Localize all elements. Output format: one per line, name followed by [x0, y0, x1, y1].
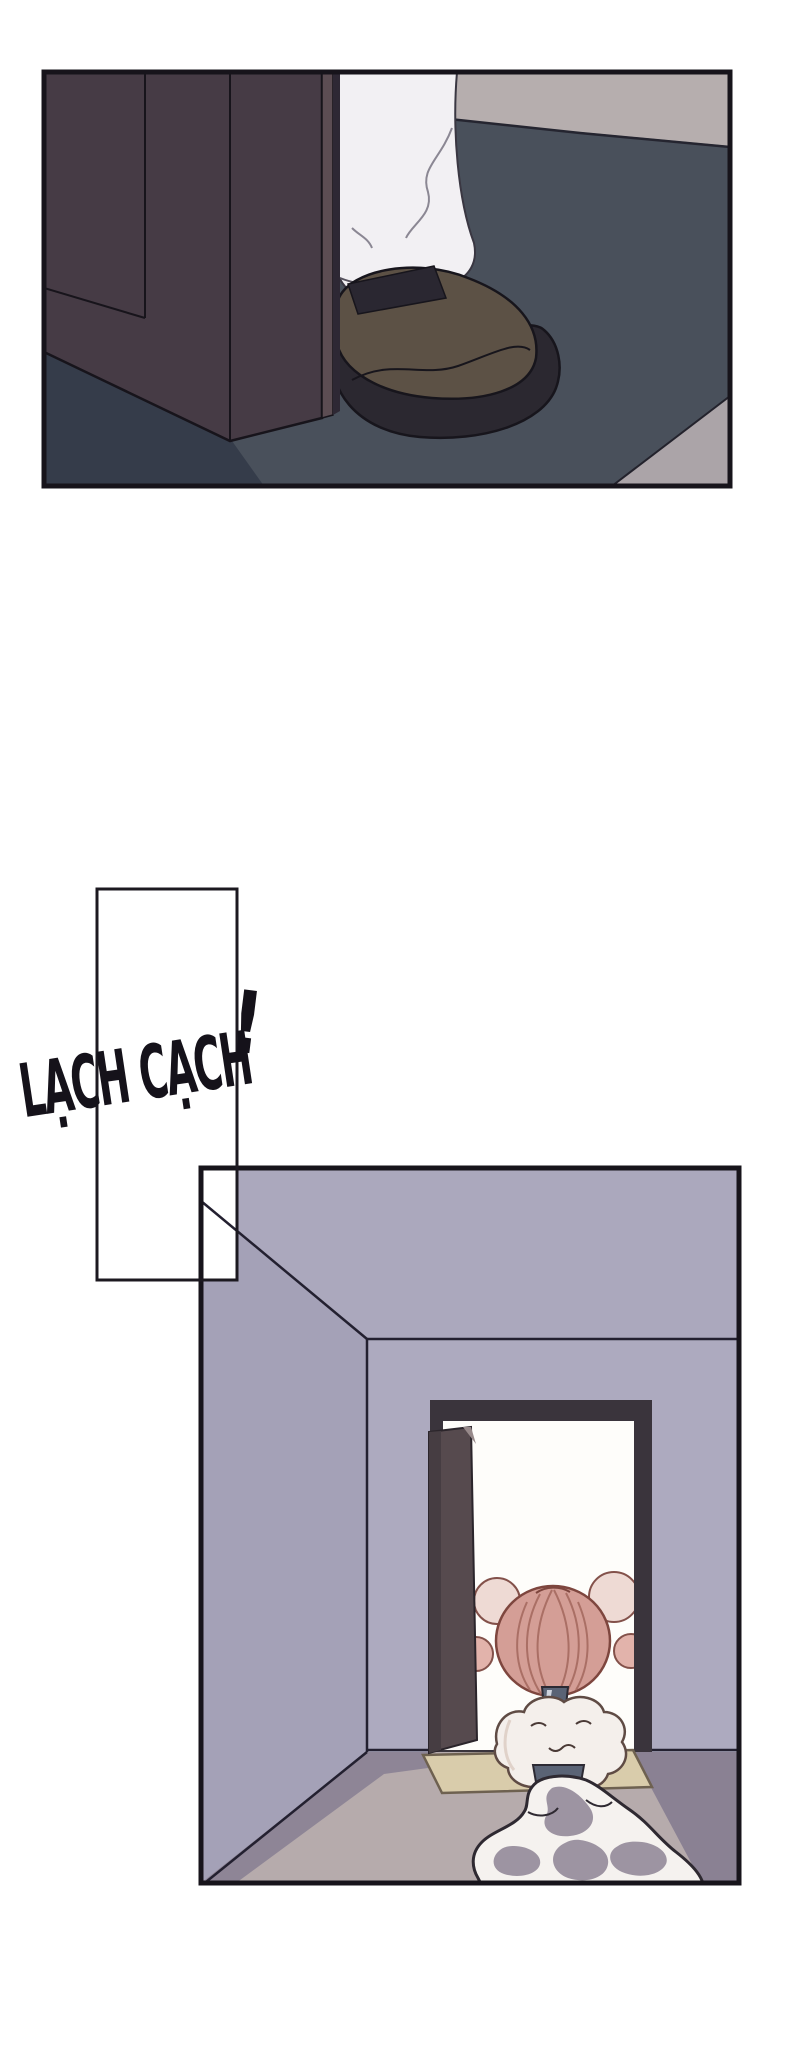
open-door-shade: [429, 1431, 441, 1753]
comic-page: LẠCH CẠCH !: [0, 0, 793, 2057]
top-panel: [44, 72, 730, 486]
wardrobe-door-edge: [322, 72, 333, 418]
wardrobe-door-gap: [333, 72, 340, 415]
character-hair: [496, 1586, 610, 1696]
bottom-panel: [201, 1168, 739, 1890]
pant-leg: [330, 72, 475, 295]
